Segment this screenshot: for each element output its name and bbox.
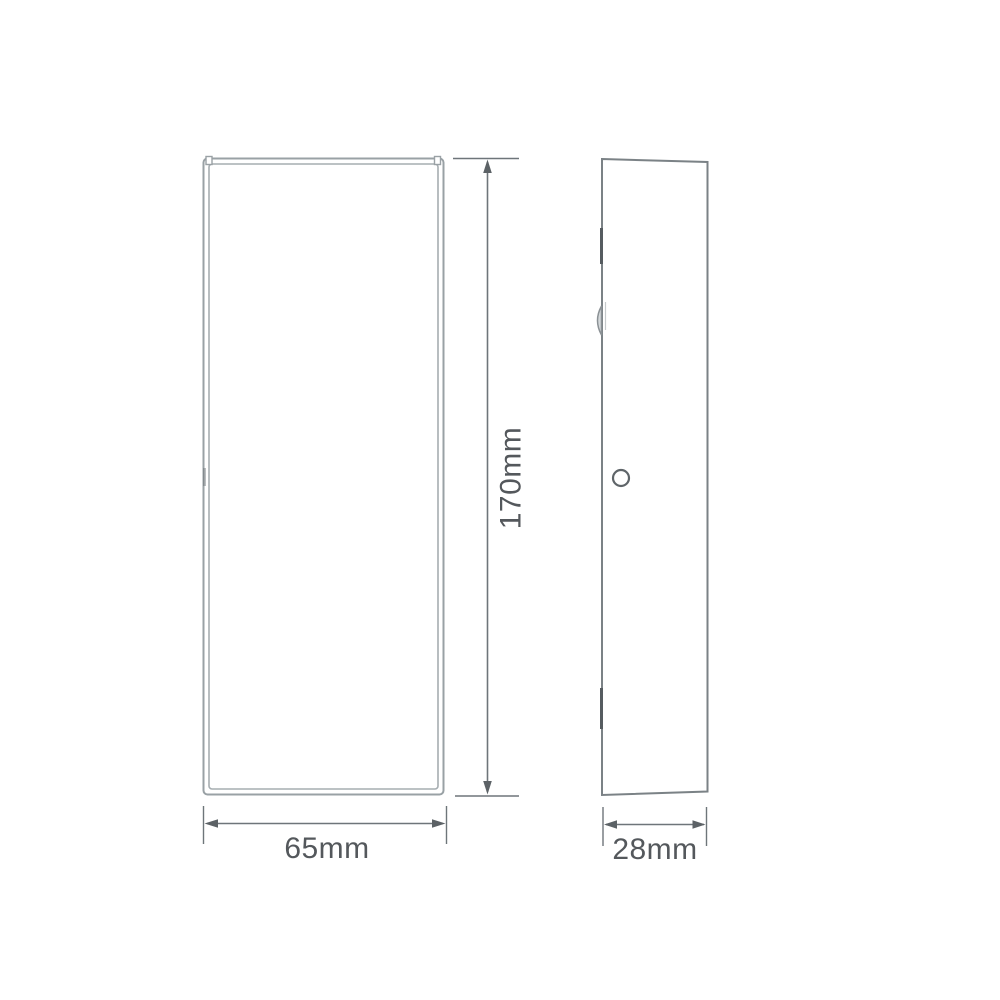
front-corner-detail-right bbox=[435, 157, 441, 165]
arrowhead-down bbox=[483, 781, 492, 795]
dimension-height: 170mm bbox=[453, 159, 528, 797]
dimension-label-height: 170mm bbox=[495, 427, 528, 530]
dimension-label-depth: 28mm bbox=[612, 833, 697, 866]
dimension-depth: 28mm bbox=[603, 807, 707, 866]
front-corner-detail-left bbox=[206, 157, 212, 165]
side-view bbox=[598, 159, 708, 795]
front-view bbox=[204, 157, 444, 795]
front-view-outline bbox=[204, 159, 444, 795]
mounting-hole bbox=[613, 470, 629, 486]
arrowhead-up bbox=[483, 160, 492, 174]
side-clip-bump bbox=[598, 306, 602, 335]
arrowhead-left bbox=[205, 819, 219, 828]
dimension-width: 65mm bbox=[204, 806, 447, 865]
arrowhead-left bbox=[604, 820, 617, 829]
dimension-drawing: 170mm 65mm 28mm bbox=[0, 0, 1000, 1000]
dimension-drawing-canvas: 170mm 65mm 28mm bbox=[0, 0, 1000, 1000]
dimension-label-width: 65mm bbox=[284, 832, 369, 865]
arrowhead-right bbox=[432, 819, 446, 828]
arrowhead-right bbox=[693, 820, 706, 829]
